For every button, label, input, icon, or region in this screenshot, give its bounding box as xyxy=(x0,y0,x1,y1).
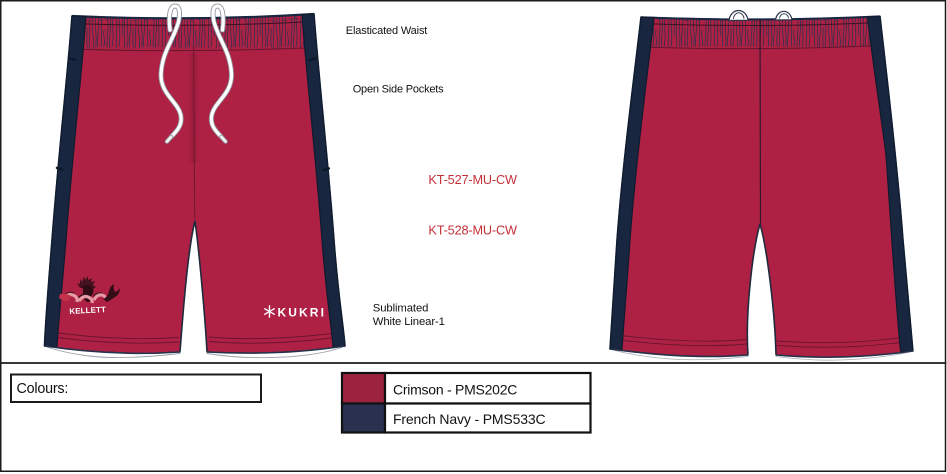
svg-text:Elasticated Waist: Elasticated Waist xyxy=(346,25,427,37)
svg-text:White Linear-1: White Linear-1 xyxy=(373,316,445,328)
svg-text:KT-527-MU-CW: KT-527-MU-CW xyxy=(428,173,517,187)
svg-text:Sublimated: Sublimated xyxy=(373,302,429,314)
svg-text:French Navy - PMS533C: French Navy - PMS533C xyxy=(393,411,545,427)
svg-text:Open Side Pockets: Open Side Pockets xyxy=(353,83,444,95)
svg-text:Colours:: Colours: xyxy=(17,381,69,397)
svg-text:Crimson - PMS202C: Crimson - PMS202C xyxy=(393,382,517,398)
svg-text:KT-528-MU-CW: KT-528-MU-CW xyxy=(428,224,517,238)
svg-text:KELLETT: KELLETT xyxy=(69,305,106,316)
svg-text:KUKRI: KUKRI xyxy=(278,306,327,320)
